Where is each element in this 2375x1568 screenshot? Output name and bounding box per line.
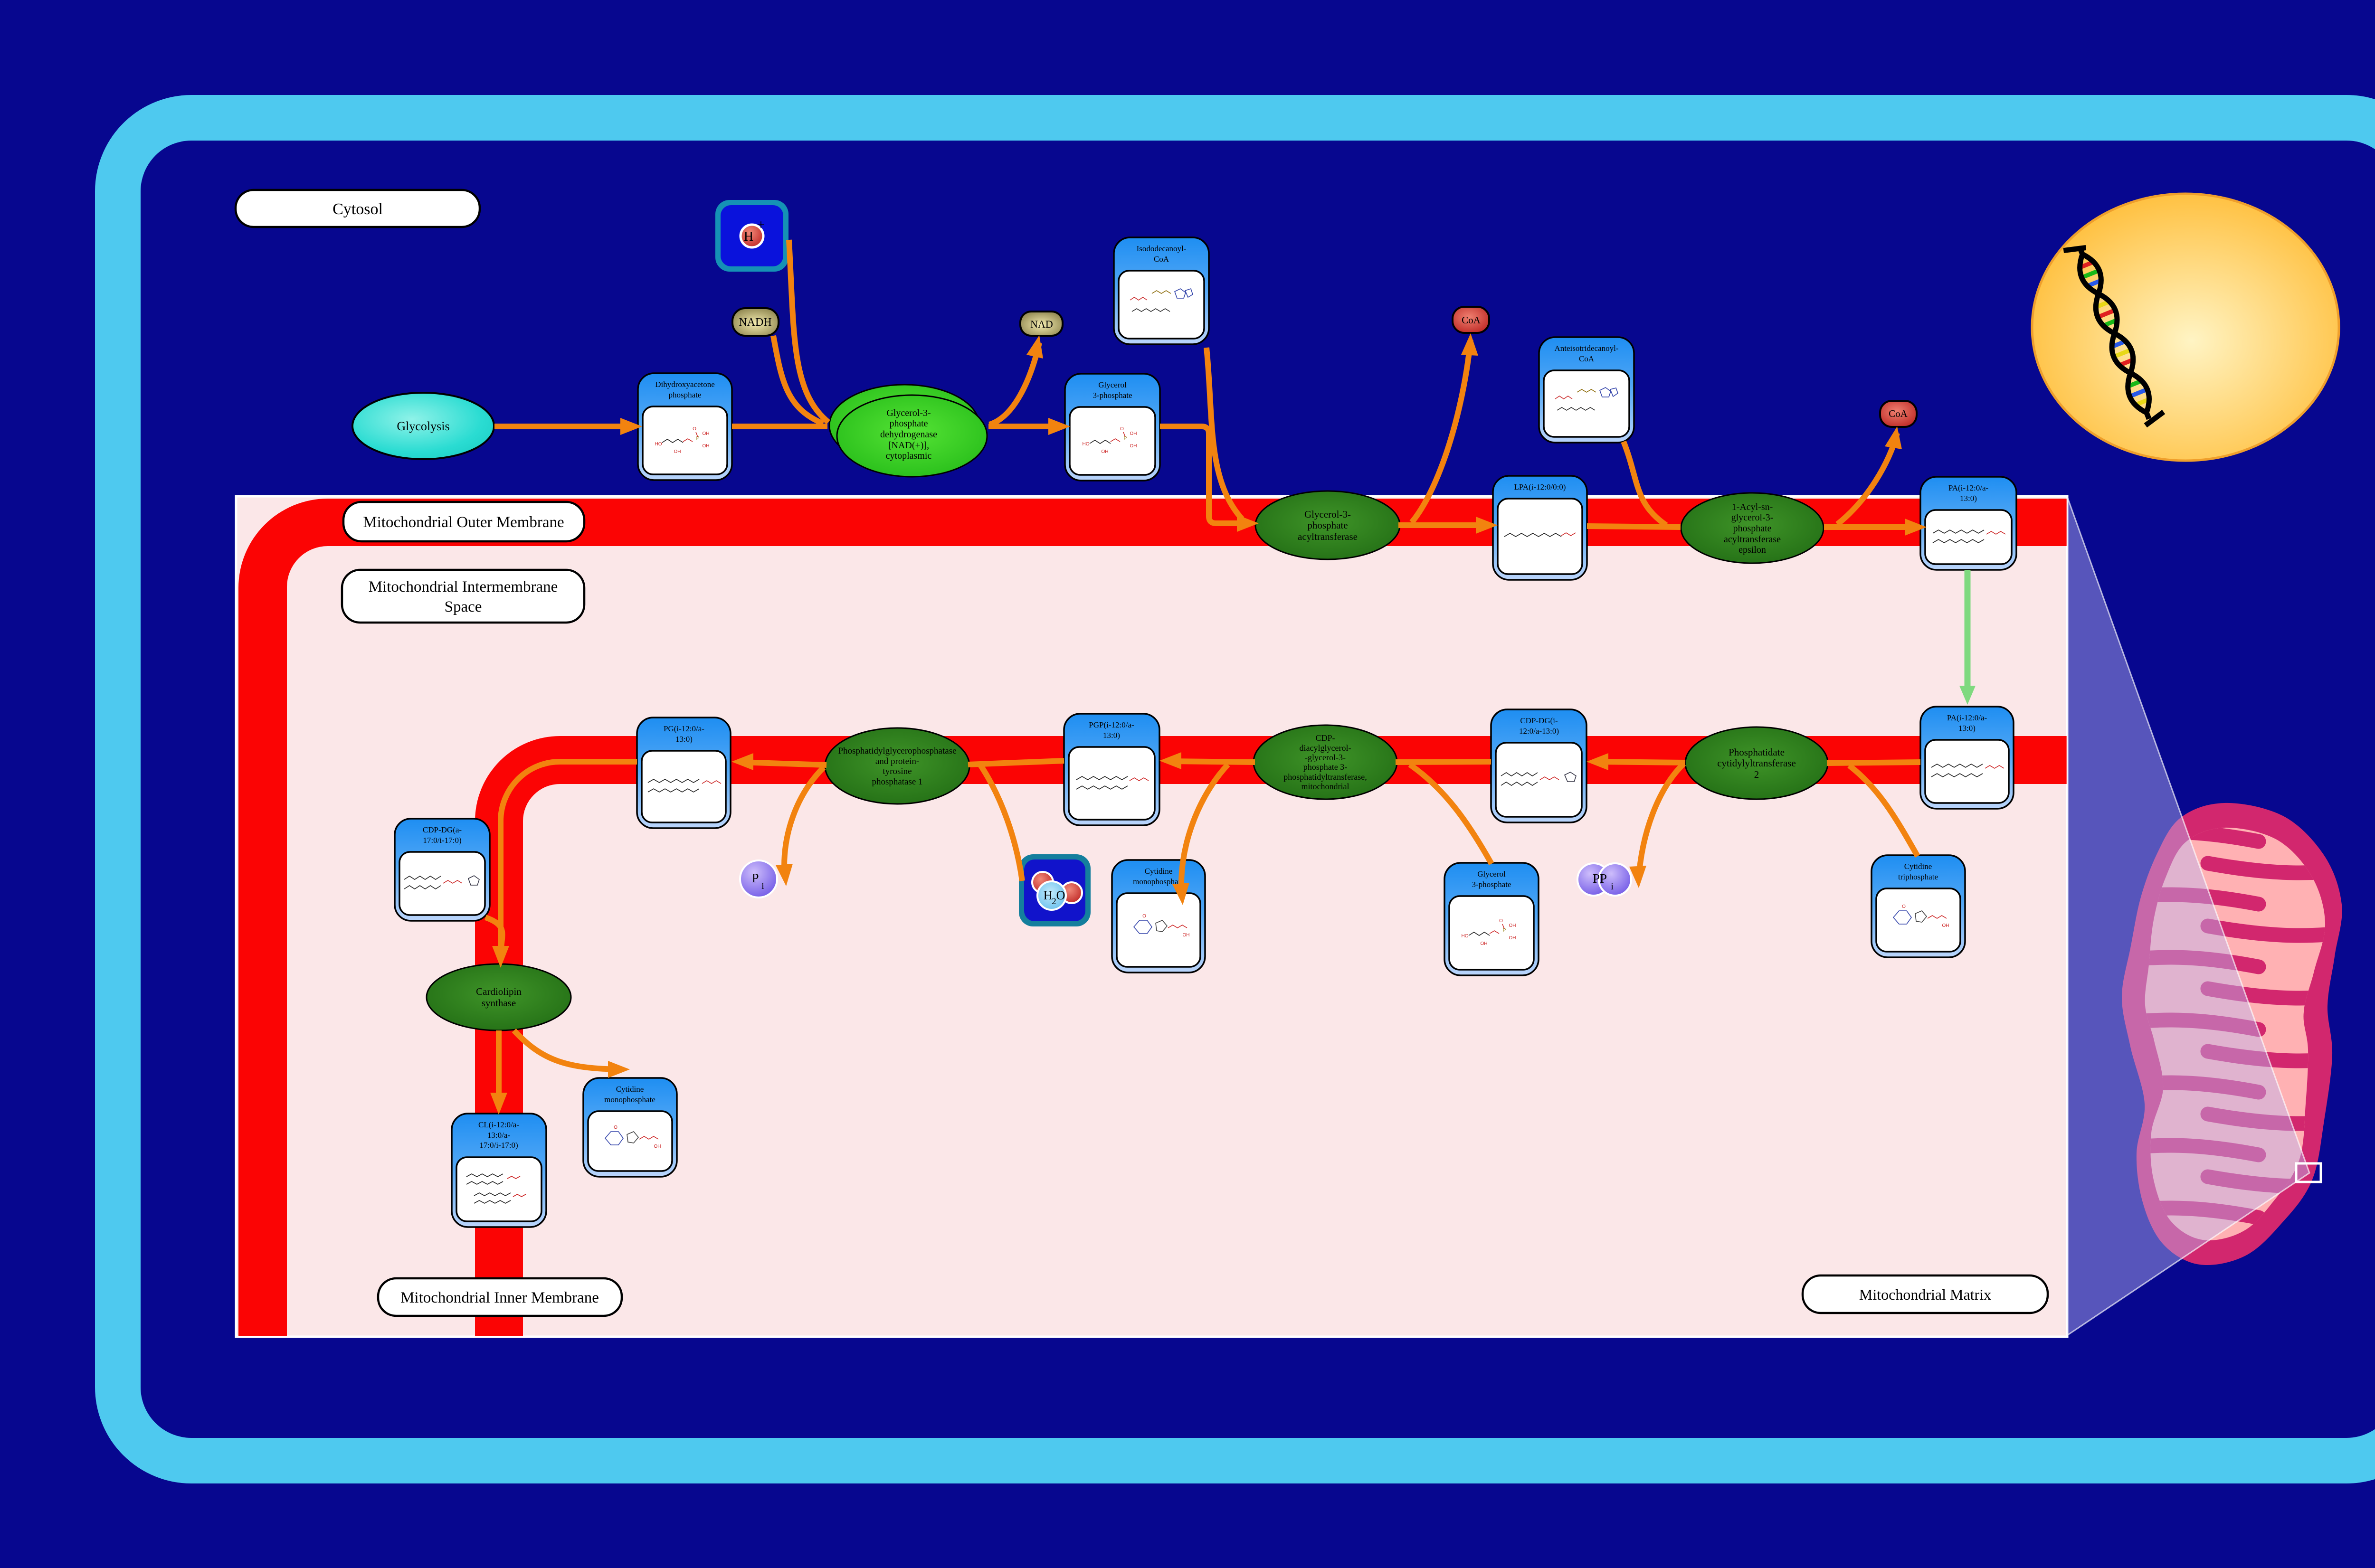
svg-text:Dihydroxyacetone: Dihydroxyacetone [655, 380, 715, 389]
svg-text:Glycerol: Glycerol [1098, 380, 1127, 389]
svg-text:PP: PP [1593, 871, 1607, 886]
svg-text:Cytidine: Cytidine [616, 1085, 644, 1094]
svg-text:phosphate: phosphate [1307, 520, 1348, 531]
svg-text:Cytidine: Cytidine [1904, 862, 1932, 871]
svg-text:triphosphate: triphosphate [1898, 872, 1938, 881]
svg-text:phosphate: phosphate [889, 418, 928, 429]
svg-text:2: 2 [1754, 769, 1759, 780]
svg-text:phosphate: phosphate [1733, 523, 1771, 534]
svg-text:Mitochondrial Intermembrane: Mitochondrial Intermembrane [369, 578, 558, 595]
svg-text:Cytidine: Cytidine [1145, 867, 1173, 876]
svg-text:O: O [1499, 918, 1503, 924]
svg-text:13:0/a-: 13:0/a- [487, 1131, 510, 1140]
svg-text:Space: Space [445, 598, 482, 615]
svg-text:13:0): 13:0) [1103, 731, 1120, 740]
svg-text:CDP-: CDP- [1315, 733, 1335, 743]
svg-text:13:0): 13:0) [1960, 494, 1977, 503]
svg-text:H: H [1044, 888, 1053, 902]
svg-text:-glycerol-3-: -glycerol-3- [1305, 753, 1346, 762]
svg-text:Anteisotridecanoyl-: Anteisotridecanoyl- [1554, 344, 1618, 353]
svg-text:1-Acyl-sn-: 1-Acyl-sn- [1732, 502, 1773, 512]
svg-text:3-phosphate: 3-phosphate [1092, 391, 1132, 400]
svg-text:CDP-DG(i-: CDP-DG(i- [1520, 716, 1558, 725]
svg-text:phosphate: phosphate [669, 390, 702, 399]
svg-text:Cardiolipin: Cardiolipin [476, 986, 522, 997]
svg-text:PGP(i-12:0/a-: PGP(i-12:0/a- [1089, 720, 1134, 729]
svg-text:OH: OH [1130, 431, 1137, 436]
svg-text:O: O [1142, 914, 1146, 919]
svg-text:Mitochondrial Inner Membrane: Mitochondrial Inner Membrane [400, 1289, 599, 1306]
svg-text:H: H [744, 229, 753, 244]
svg-text:NAD: NAD [1030, 318, 1053, 330]
svg-text:CoA: CoA [1154, 255, 1169, 264]
svg-text:CoA: CoA [1579, 354, 1595, 363]
svg-text:HO: HO [655, 442, 662, 447]
svg-text:OH: OH [1130, 444, 1137, 449]
svg-text:cytoplasmic: cytoplasmic [886, 451, 932, 461]
svg-text:HO: HO [1083, 442, 1090, 447]
svg-text:O: O [693, 426, 696, 432]
svg-text:Mitochondrial Outer Membrane: Mitochondrial Outer Membrane [363, 514, 564, 531]
svg-text:mitochondrial: mitochondrial [1301, 782, 1349, 791]
svg-text:cytidylyltransferase: cytidylyltransferase [1717, 757, 1796, 769]
svg-text:phosphatidyltransferase,: phosphatidyltransferase, [1283, 772, 1367, 782]
svg-text:monophosphate: monophosphate [604, 1095, 655, 1104]
svg-text:i: i [1611, 881, 1614, 892]
svg-text:CDP-DG(a-: CDP-DG(a- [423, 825, 462, 834]
svg-text:acyltransferase: acyltransferase [1298, 531, 1358, 542]
svg-text:epsilon: epsilon [1738, 545, 1766, 555]
svg-text:HO: HO [1462, 934, 1469, 939]
svg-text:13:0): 13:0) [675, 735, 693, 744]
svg-text:synthase: synthase [482, 997, 516, 1009]
svg-text:and protein-: and protein- [875, 756, 919, 766]
svg-text:Isododecanoyl-: Isododecanoyl- [1137, 244, 1187, 253]
svg-text:phosphatase 1: phosphatase 1 [872, 777, 922, 787]
svg-text:PG(i-12:0/a-: PG(i-12:0/a- [664, 724, 704, 733]
svg-text:O: O [614, 1125, 617, 1130]
svg-text:13:0): 13:0) [1958, 724, 1976, 733]
svg-text:OH: OH [703, 444, 710, 449]
svg-text:2: 2 [1052, 897, 1056, 907]
svg-text:OH: OH [654, 1144, 661, 1149]
svg-text:LPA(i-12:0/0:0): LPA(i-12:0/0:0) [1514, 482, 1566, 491]
svg-text:OH: OH [1102, 449, 1109, 454]
svg-text:OH: OH [1942, 923, 1949, 928]
svg-text:3-phosphate: 3-phosphate [1472, 880, 1511, 889]
svg-text:Glycerol-3-: Glycerol-3- [886, 408, 931, 418]
svg-text:tyrosine: tyrosine [883, 766, 912, 776]
svg-text:Mitochondrial Matrix: Mitochondrial Matrix [1859, 1286, 1991, 1303]
svg-text:O: O [1120, 426, 1124, 432]
svg-text:OH: OH [1183, 933, 1190, 938]
svg-text:Cytosol: Cytosol [332, 200, 383, 218]
svg-text:phosphate 3-: phosphate 3- [1303, 762, 1347, 772]
svg-text:PA(i-12:0/a-: PA(i-12:0/a- [1947, 713, 1987, 722]
svg-text:+: + [757, 217, 765, 233]
svg-text:dehydrogenase: dehydrogenase [880, 429, 937, 440]
svg-text:diacylglycerol-: diacylglycerol- [1300, 743, 1351, 753]
svg-text:O: O [1056, 888, 1065, 902]
svg-text:P: P [751, 871, 759, 885]
svg-text:Phosphatidylglycerophosphatase: Phosphatidylglycerophosphatase [838, 746, 956, 756]
svg-text:12:0/a-13:0): 12:0/a-13:0) [1519, 727, 1559, 736]
svg-text:CoA: CoA [1462, 314, 1481, 326]
svg-text:Glycerol-3-: Glycerol-3- [1304, 509, 1351, 520]
svg-text:acyltransferase: acyltransferase [1724, 534, 1781, 545]
svg-text:i: i [761, 881, 764, 891]
svg-text:CL(i-12:0/a-: CL(i-12:0/a- [478, 1120, 519, 1129]
svg-text:OH: OH [674, 449, 681, 454]
svg-text:OH: OH [1509, 923, 1516, 928]
svg-text:CoA: CoA [1889, 408, 1908, 419]
svg-text:Glycerol: Glycerol [1477, 869, 1506, 878]
svg-text:OH: OH [1481, 941, 1488, 946]
svg-text:PA(i-12:0/a-: PA(i-12:0/a- [1948, 483, 1989, 492]
svg-text:17:0/i-17:0): 17:0/i-17:0) [423, 836, 461, 845]
svg-text:17:0/i-17:0): 17:0/i-17:0) [479, 1141, 518, 1150]
svg-text:O: O [1902, 904, 1906, 909]
svg-text:NADH: NADH [739, 316, 771, 329]
svg-text:Glycolysis: Glycolysis [397, 419, 449, 433]
svg-text:OH: OH [703, 431, 710, 436]
svg-text:glycerol-3-: glycerol-3- [1731, 512, 1774, 523]
svg-text:[NAD(+)],: [NAD(+)], [888, 440, 929, 451]
svg-text:OH: OH [1509, 935, 1516, 941]
svg-text:Phosphatidate: Phosphatidate [1729, 746, 1785, 758]
